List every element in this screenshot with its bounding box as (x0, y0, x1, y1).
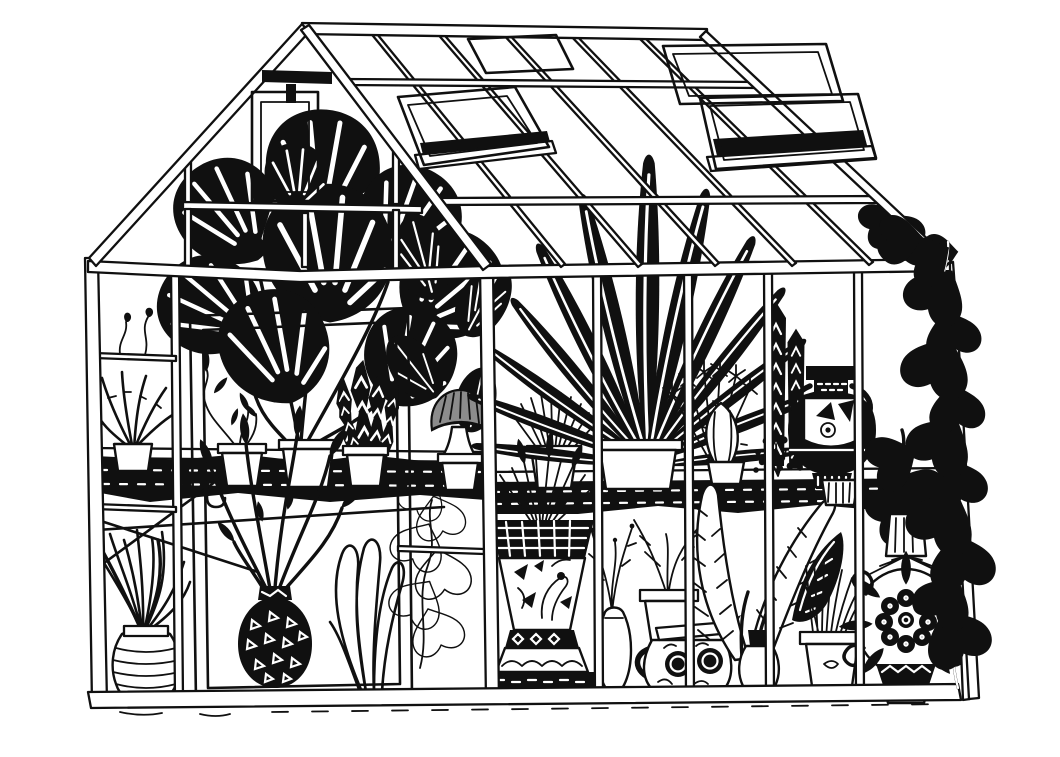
peace-lily-foliage (330, 540, 404, 692)
purlin (436, 196, 879, 205)
apex-bracket (262, 70, 332, 103)
skylight-right (700, 94, 876, 171)
greenhouse-illustration (0, 0, 1060, 757)
triangle-vase (238, 586, 312, 688)
skylight-left (398, 87, 556, 169)
purlin (345, 79, 757, 88)
striped-pot (822, 480, 858, 505)
corner-post (480, 268, 499, 701)
greenhouse-drawing (0, 0, 1060, 757)
roof-flat-pane (468, 35, 843, 104)
